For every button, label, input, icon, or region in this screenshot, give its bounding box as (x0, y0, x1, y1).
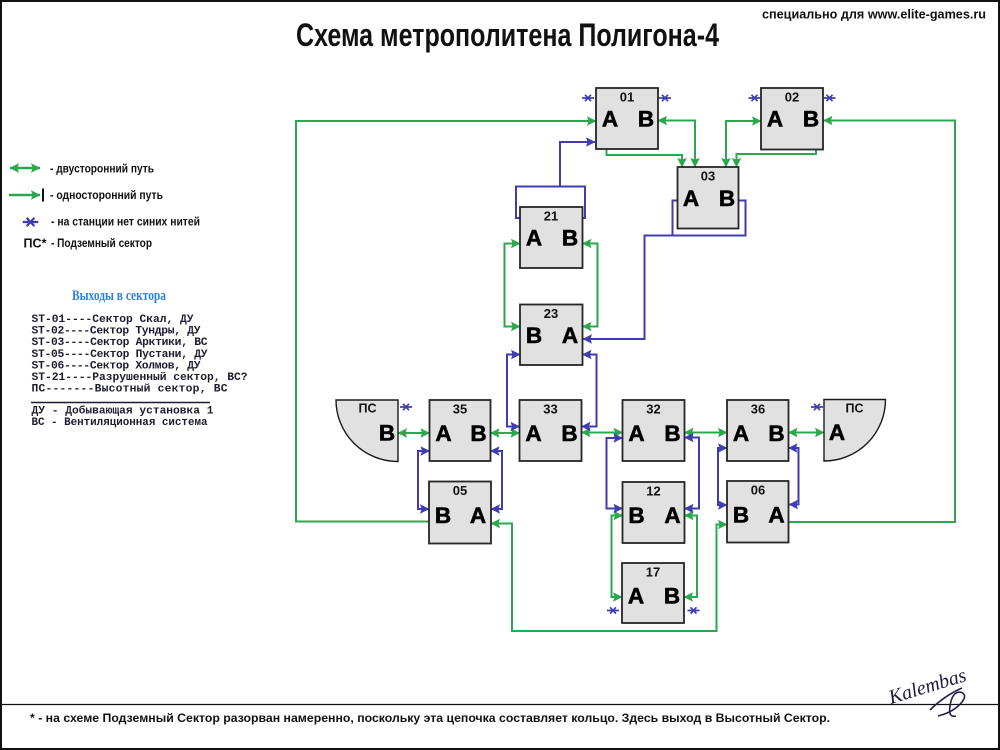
svg-text:ПС: ПС (358, 402, 376, 416)
svg-text:32: 32 (646, 402, 660, 417)
svg-text:В: В (379, 421, 395, 446)
svg-text:В: В (768, 421, 784, 446)
svg-text:А: А (526, 226, 542, 251)
svg-text:А: А (525, 421, 541, 446)
svg-text:А: А (733, 421, 749, 446)
svg-text:05: 05 (453, 483, 467, 498)
svg-text:А: А (829, 420, 845, 445)
svg-text:В: В (435, 503, 451, 528)
svg-text:В: В (562, 226, 578, 251)
svg-text:01: 01 (620, 90, 634, 105)
svg-text:03: 03 (701, 169, 715, 184)
svg-text:В: В (664, 421, 680, 446)
svg-text:В: В (470, 421, 486, 446)
svg-text:ST-06----Сектор Холмов, ДУ: ST-06----Сектор Холмов, ДУ (32, 360, 201, 372)
svg-text:В: В (733, 503, 749, 528)
svg-text:33: 33 (543, 402, 557, 417)
svg-text:02: 02 (785, 90, 799, 105)
svg-text:А: А (435, 421, 451, 446)
svg-text:Выходы в сектора: Выходы в сектора (72, 288, 167, 304)
svg-text:А: А (767, 107, 783, 132)
svg-text:Схема метрополитена Полигона-4: Схема метрополитена Полигона-4 (296, 17, 719, 53)
svg-text:17: 17 (646, 565, 660, 580)
svg-text:ДУ - Добывающая установка 1: ДУ - Добывающая установка 1 (32, 405, 214, 418)
svg-text:ПС: ПС (845, 402, 863, 416)
svg-text:В: В (628, 503, 644, 528)
svg-text:ST-02----Сектор Тундры, ДУ: ST-02----Сектор Тундры, ДУ (32, 326, 201, 338)
svg-text:ST-01----Сектор Скал, ДУ: ST-01----Сектор Скал, ДУ (32, 314, 194, 326)
svg-text:- Подземный сектор: - Подземный сектор (51, 238, 152, 250)
svg-text:В: В (638, 107, 654, 132)
svg-text:* - на схеме Подземный Сектор: * - на схеме Подземный Сектор разорван н… (30, 713, 830, 725)
svg-text:35: 35 (453, 402, 467, 417)
svg-text:В: В (719, 186, 735, 211)
svg-text:В: В (526, 323, 542, 348)
svg-text:А: А (562, 323, 578, 348)
svg-text:36: 36 (751, 402, 765, 417)
svg-text:ВС - Вентиляционная система: ВС - Вентиляционная система (32, 417, 208, 429)
svg-text:- двусторонний путь: - двусторонний путь (50, 164, 154, 176)
svg-text:В: В (561, 421, 577, 446)
svg-text:- на станции нет синих нитей: - на станции нет синих нитей (51, 217, 200, 229)
svg-text:А: А (664, 503, 680, 528)
svg-text:ПС-------Высотный сектор, ВС: ПС-------Высотный сектор, ВС (32, 384, 228, 396)
svg-text:Kalembas: Kalembas (885, 664, 969, 709)
svg-text:21: 21 (544, 209, 558, 224)
svg-text:ST-21----Разрушенный сектор, В: ST-21----Разрушенный сектор, ВС? (32, 372, 248, 384)
svg-text:ST-05----Сектор Пустани, ДУ: ST-05----Сектор Пустани, ДУ (32, 349, 208, 361)
svg-text:А: А (768, 503, 784, 528)
svg-text:В: В (803, 107, 819, 132)
svg-text:А: А (628, 584, 644, 609)
svg-text:ST-03----Сектор Арктики, ВС: ST-03----Сектор Арктики, ВС (32, 337, 208, 349)
svg-text:специально для www.elite-games: специально для www.elite-games.ru (762, 7, 986, 22)
svg-text:23: 23 (544, 306, 558, 321)
svg-text:- односторонний путь: - односторонний путь (50, 190, 163, 202)
svg-text:ПС*: ПС* (24, 236, 48, 251)
svg-text:А: А (683, 186, 699, 211)
svg-text:В: В (664, 584, 680, 609)
svg-text:06: 06 (751, 483, 765, 498)
svg-text:А: А (470, 503, 486, 528)
svg-text:А: А (628, 421, 644, 446)
svg-text:12: 12 (646, 484, 660, 499)
svg-text:А: А (602, 107, 618, 132)
